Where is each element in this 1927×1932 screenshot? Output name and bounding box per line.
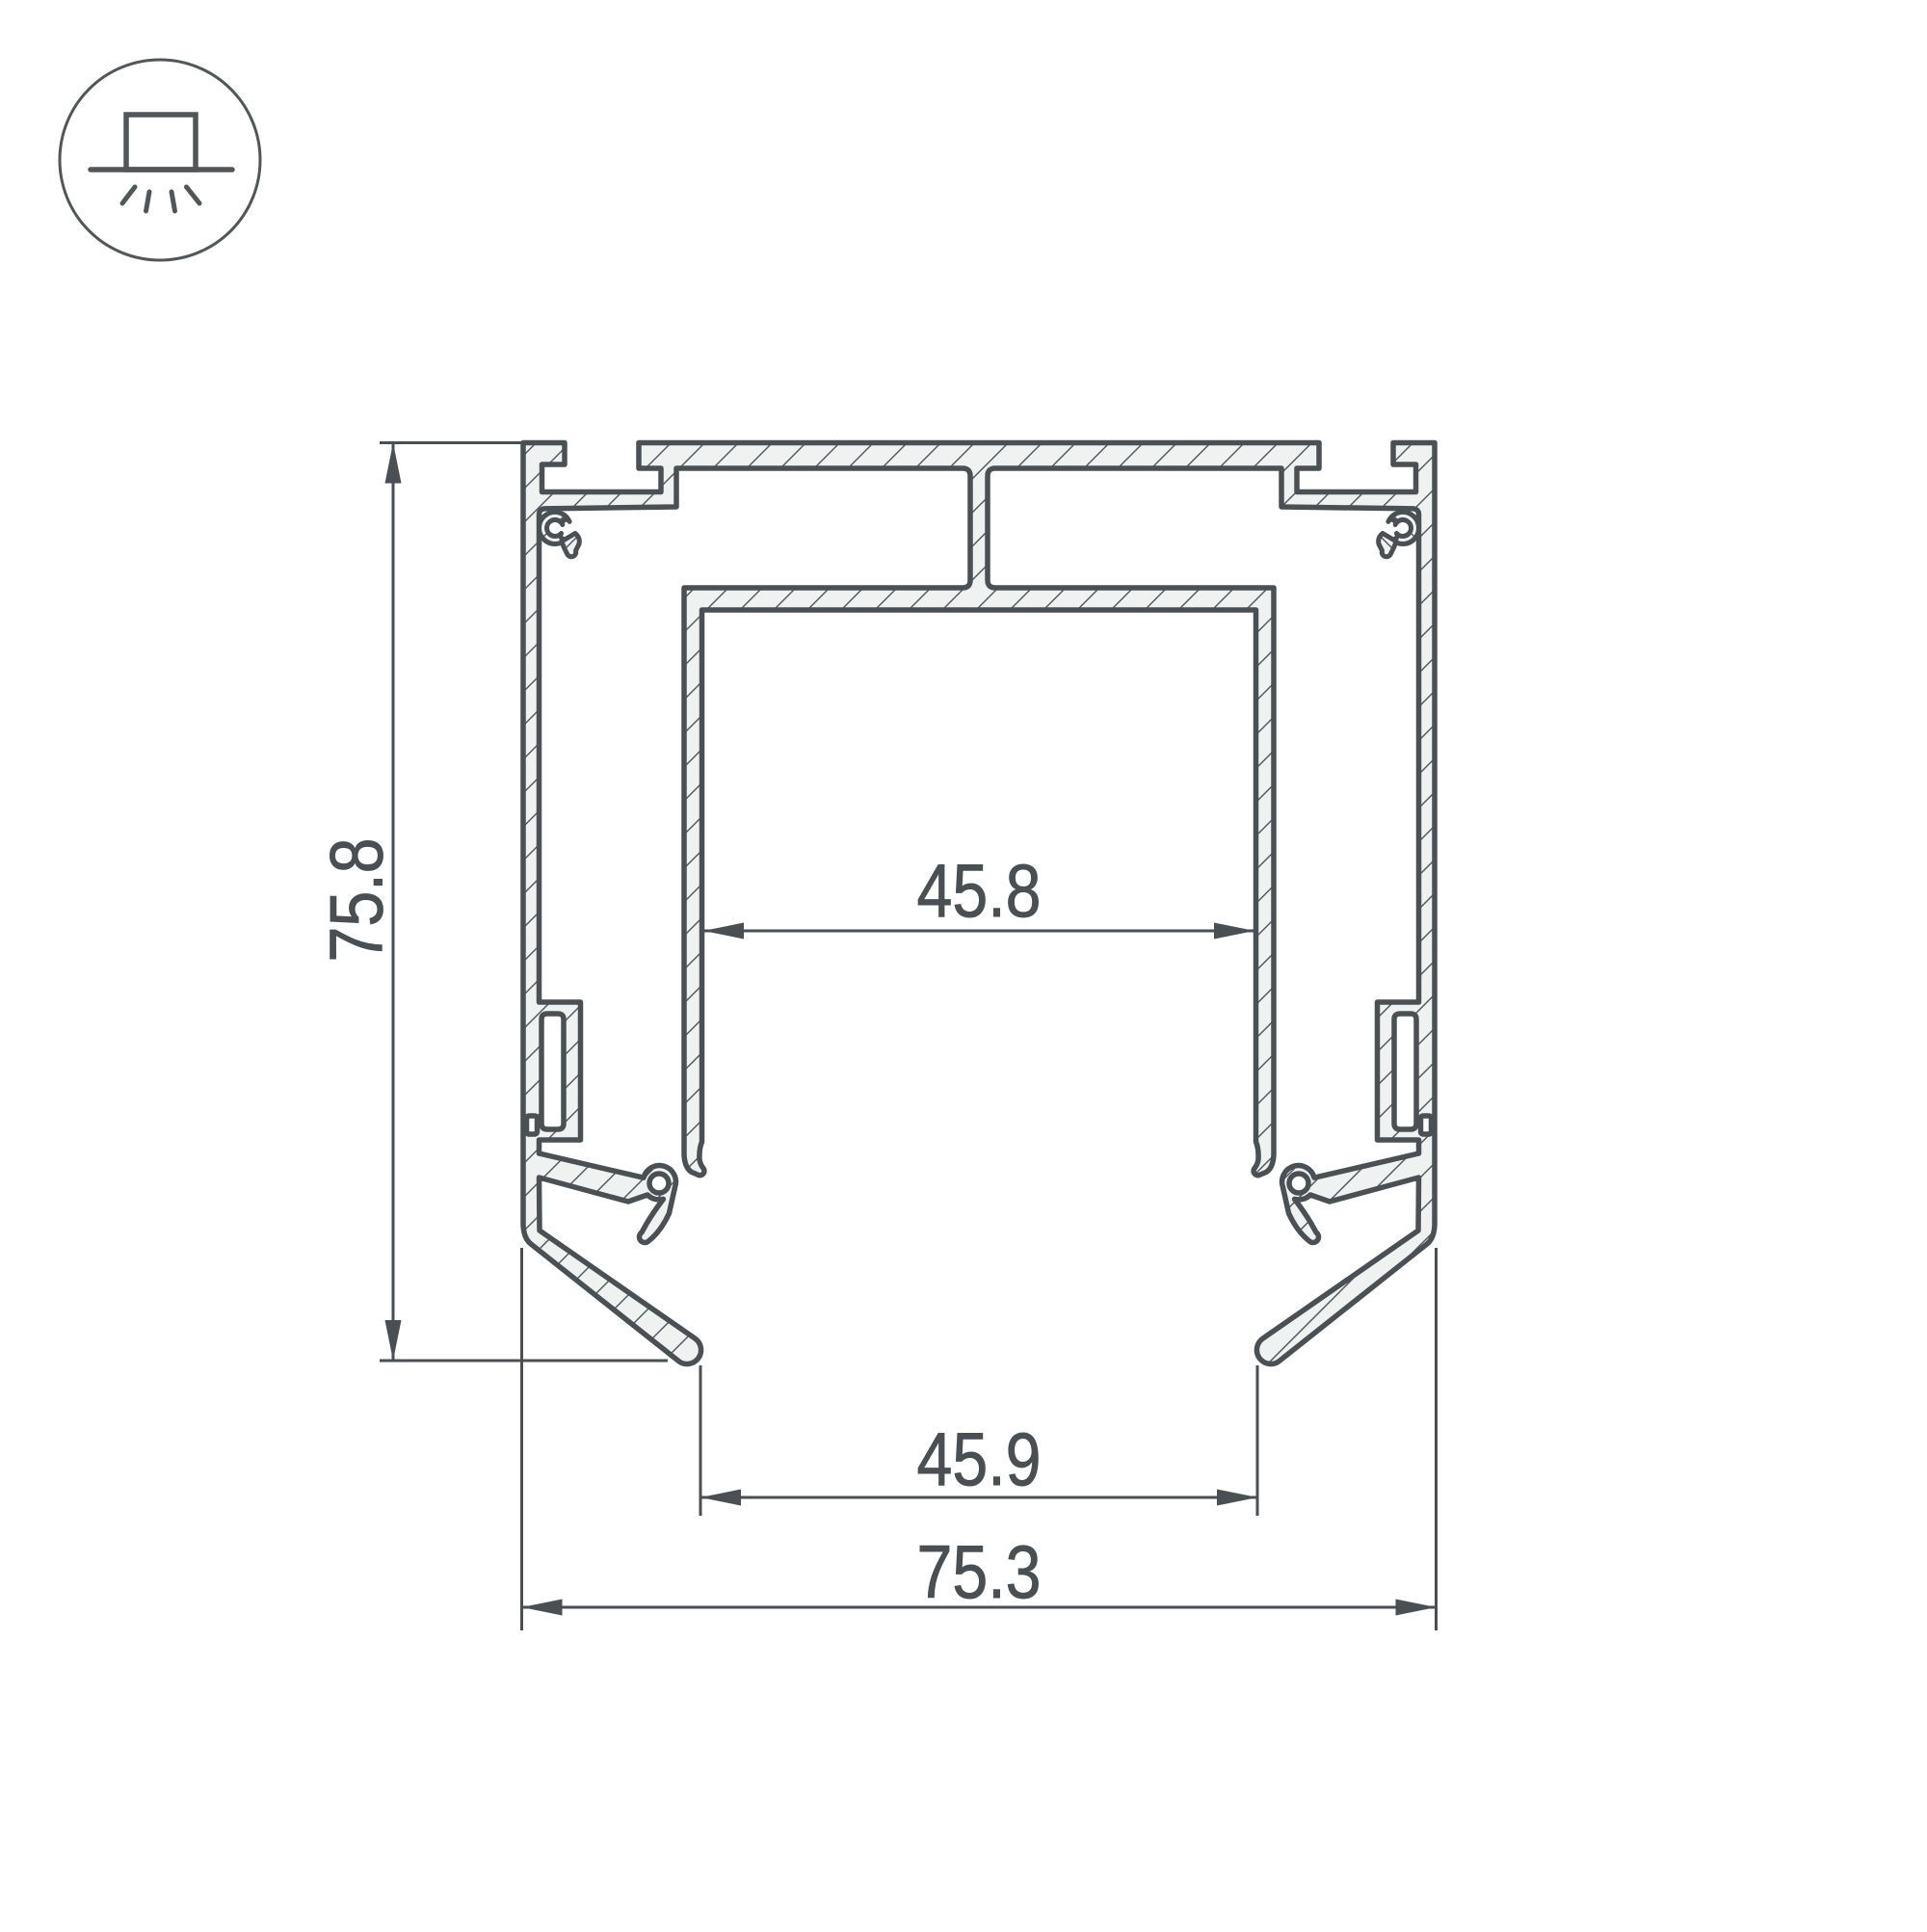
svg-text:75.8: 75.8 — [314, 837, 398, 962]
svg-text:75.3: 75.3 — [916, 1530, 1041, 1614]
svg-text:45.8: 45.8 — [916, 849, 1041, 933]
svg-text:45.9: 45.9 — [916, 1417, 1041, 1501]
